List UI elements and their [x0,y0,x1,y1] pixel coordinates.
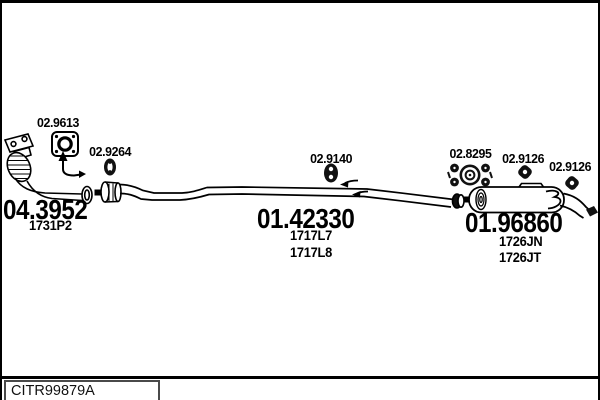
label-front-clamp: 02.9264 [89,145,131,158]
label-rear-mount: 02.8295 [449,147,492,160]
hanger-icon-centre [324,164,338,183]
alt-number-centre-pipe-2: 1717L8 [290,245,332,259]
hanger-icon-rear-1 [517,164,534,181]
label-rear-hanger-1: 02.9126 [502,152,544,165]
footer-divider [2,376,600,379]
hanger-icon-rear-2 [564,175,581,192]
pipe-coupling-drawing [95,182,122,202]
exhaust-catalog-page: 02.9613 02.9264 02.9140 02.8295 02.9126 … [0,0,600,400]
alt-number-rear-silencer-1: 1726JN [499,234,542,248]
mount-icon [448,164,492,187]
gasket-icon [52,132,78,156]
alt-number-catalytic-converter: 1731P2 [29,218,72,232]
alt-number-rear-silencer-2: 1726JT [499,250,541,264]
exhaust-diagram [2,3,600,400]
catalog-code-box: CITR99879A [4,380,160,400]
alt-number-centre-pipe-1: 1717L7 [290,228,332,242]
label-flange-gasket: 02.9613 [35,116,81,129]
clamp-icon [104,159,116,176]
silencer-inlet-clamp-drawing [453,194,471,208]
label-centre-hanger: 02.9140 [310,152,352,165]
label-rear-hanger-2: 02.9126 [549,160,591,173]
